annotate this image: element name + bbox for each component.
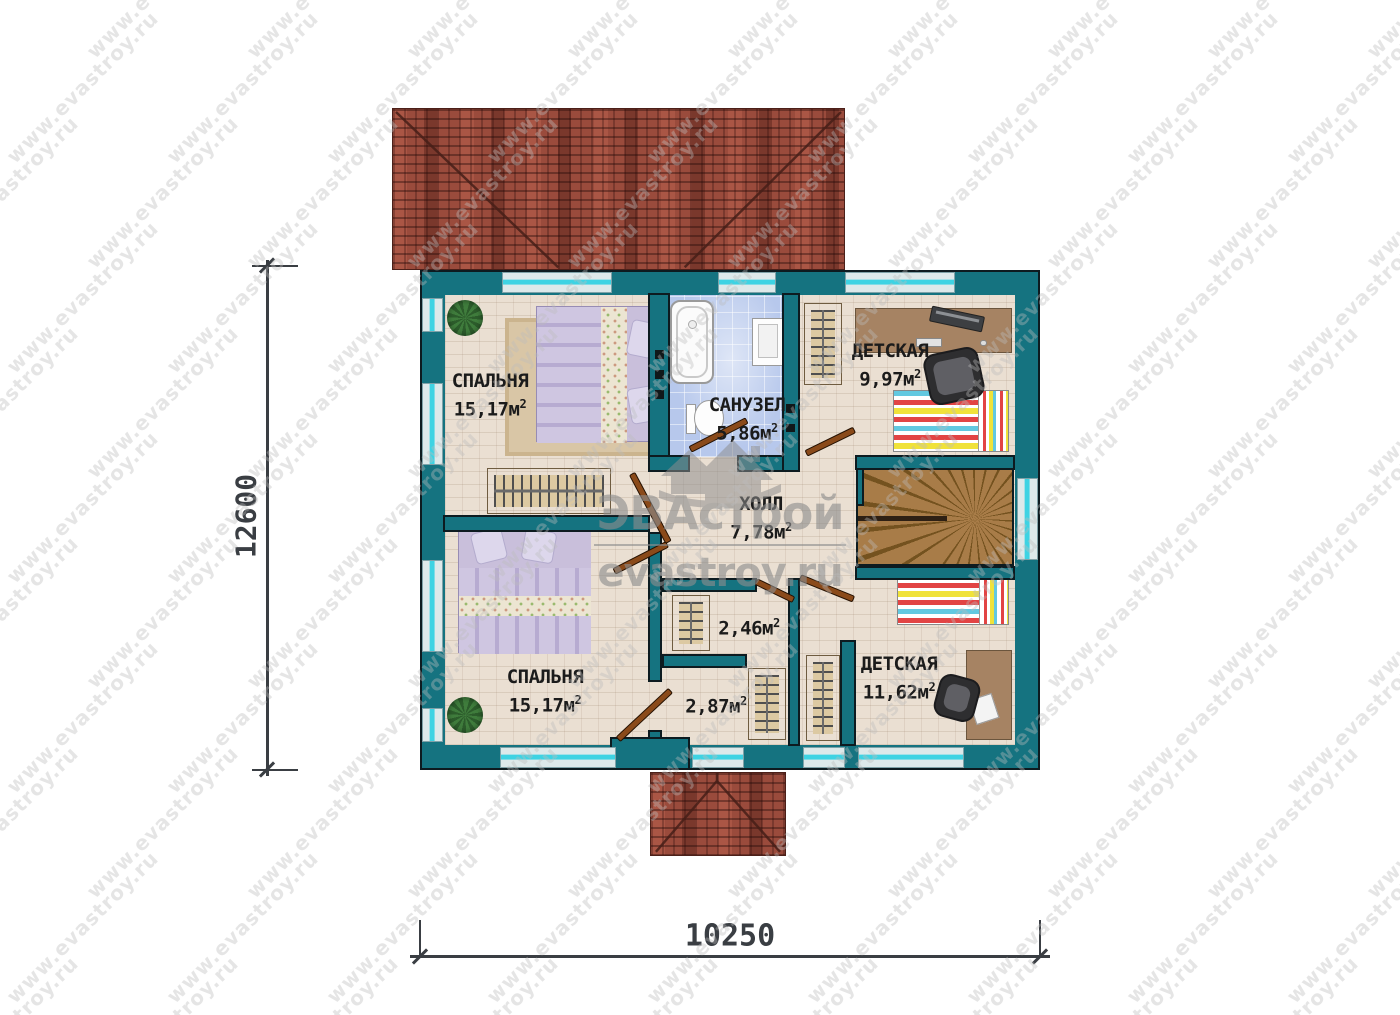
watermark-text: www.evastroy.ru (1202, 531, 1364, 693)
watermark-text: www.evastroy.ru (1282, 216, 1400, 378)
watermark-text: www.evastroy.ru (2, 426, 164, 588)
wardrobe (806, 655, 840, 741)
roof-top (392, 108, 845, 270)
watermark-text: www.evastroy.ru (162, 636, 324, 798)
watermark-text: www.evastroy.ru (1122, 636, 1284, 798)
window (845, 272, 955, 293)
watermark-text: www.evastroy.ru (2, 846, 164, 1008)
watermark-text: www.evastroy.ru (1282, 426, 1400, 588)
bed (536, 306, 658, 442)
watermark-text: www.evastroy.ru (1202, 111, 1364, 273)
interior-wall (856, 468, 864, 506)
watermark-text: www.evastroy.ru (562, 0, 724, 63)
dimension-label-horizontal: 10250 (685, 919, 775, 954)
wardrobe (672, 595, 710, 651)
watermark-text: www.evastroy.ru (1362, 531, 1400, 693)
watermark-text: www.evastroy.ru (402, 951, 564, 1015)
watermark-text: www.evastroy.ru (1042, 741, 1204, 903)
watermark-text: www.evastroy.ru (1042, 951, 1204, 1015)
interior-wall (855, 455, 1015, 470)
kids-bed-headboard (979, 574, 1008, 624)
room-area: 11,62м2 (861, 676, 938, 704)
sink (752, 318, 786, 366)
interior-wall (788, 578, 800, 746)
watermark-text: www.evastroy.ru (722, 0, 884, 63)
watermark-text: www.evastroy.ru (82, 321, 244, 483)
room-area: 15,17м2 (452, 393, 529, 421)
watermark-text: www.evastroy.ru (2, 6, 164, 168)
watermark-text: www.evastroy.ru (82, 741, 244, 903)
room-area: 15,17м2 (507, 689, 584, 717)
brand-logo: ЭВАстрой evastroy.ru (588, 428, 852, 596)
watermark-text: www.evastroy.ru (1362, 0, 1400, 63)
watermark-text: www.evastroy.ru (482, 846, 644, 1008)
floor-plan-canvas: СПАЛЬНЯ 15,17м2 САНУЗЕЛ 5,86м2 ДЕТСКАЯ 9… (0, 0, 1400, 1015)
dimension-line-vertical (266, 260, 269, 776)
watermark-text: www.evastroy.ru (1042, 321, 1204, 483)
brand-site: evastroy.ru (588, 550, 852, 596)
window (422, 298, 443, 332)
watermark-text: www.evastroy.ru (402, 0, 564, 63)
plant (447, 300, 483, 336)
pillow (520, 527, 557, 564)
sink-basin (758, 324, 778, 358)
watermark-text: www.evastroy.ru (0, 741, 83, 903)
room-area: 2,46м2 (718, 612, 779, 640)
dimension-line-horizontal (410, 955, 1050, 958)
watermark-text: www.evastroy.ru (0, 111, 83, 273)
dimension-label-vertical: 12600 (230, 474, 263, 558)
bed-runner (459, 596, 591, 616)
bed (458, 523, 590, 653)
watermark-text: www.evastroy.ru (882, 111, 1044, 273)
bed-runner (601, 307, 627, 443)
room-name: САНУЗЕЛ (709, 394, 786, 417)
watermark-text: www.evastroy.ru (322, 846, 484, 1008)
window (803, 747, 845, 768)
wardrobe (748, 668, 786, 740)
plant (447, 697, 483, 733)
room-name: ДЕТСКАЯ (852, 340, 929, 363)
watermark-text: www.evastroy.ru (1282, 636, 1400, 798)
kids-bed-blanket (898, 574, 981, 624)
watermark-text: www.evastroy.ru (1282, 6, 1400, 168)
watermark-text: www.evastroy.ru (242, 951, 404, 1015)
house-icon (655, 428, 785, 508)
window (858, 747, 964, 768)
watermark-text: www.evastroy.ru (1042, 0, 1204, 63)
room-label-bedroom-bottom: СПАЛЬНЯ 15,17м2 (507, 666, 584, 717)
watermark-text: www.evastroy.ru (1362, 111, 1400, 273)
room-name: СПАЛЬНЯ (452, 370, 529, 393)
watermark-text: www.evastroy.ru (0, 531, 83, 693)
watermark-text: www.evastroy.ru (0, 951, 83, 1015)
room-label-kids-top: ДЕТСКАЯ 9,97м2 (852, 340, 929, 391)
watermark-text: www.evastroy.ru (0, 321, 83, 483)
room-label-bedroom-top: СПАЛЬНЯ 15,17м2 (452, 370, 529, 421)
wardrobe (804, 303, 842, 385)
watermark-text: www.evastroy.ru (162, 6, 324, 168)
watermark-text: www.evastroy.ru (82, 0, 244, 63)
watermark-text: www.evastroy.ru (242, 0, 404, 63)
window (422, 383, 443, 465)
watermark-text: www.evastroy.ru (1362, 321, 1400, 483)
window (500, 747, 616, 768)
dimension-witness (252, 265, 298, 267)
watermark-text: www.evastroy.ru (562, 951, 724, 1015)
watermark-text: www.evastroy.ru (1042, 111, 1204, 273)
roof-porch-hip-lines (651, 773, 785, 856)
window (502, 272, 612, 293)
watermark-text: www.evastroy.ru (802, 846, 964, 1008)
mouse (980, 340, 987, 346)
window (692, 747, 744, 768)
window (422, 708, 443, 742)
roof-porch (650, 772, 786, 856)
window (1017, 478, 1038, 560)
watermark-text: www.evastroy.ru (1202, 951, 1364, 1015)
watermark-text: www.evastroy.ru (882, 951, 1044, 1015)
interior-wall (840, 640, 856, 746)
room-area: 9,97м2 (852, 363, 929, 391)
watermark-text: www.evastroy.ru (962, 846, 1124, 1008)
interior-wall (855, 566, 1015, 580)
watermark-text: www.evastroy.ru (82, 951, 244, 1015)
watermark-text: www.evastroy.ru (962, 6, 1124, 168)
watermark-text: www.evastroy.ru (1362, 951, 1400, 1015)
kids-bed-headboard (978, 391, 1008, 451)
watermark-text: www.evastroy.ru (882, 0, 1044, 63)
window (718, 272, 776, 293)
dimension-witness (252, 769, 298, 771)
room-area: 2,87м2 (685, 690, 746, 718)
watermark-text: www.evastroy.ru (1122, 216, 1284, 378)
radiator (655, 350, 664, 410)
watermark-text: www.evastroy.ru (2, 636, 164, 798)
exterior-pier (610, 737, 690, 770)
roof-hip-lines (393, 109, 844, 270)
watermark-text: www.evastroy.ru (1282, 846, 1400, 1008)
watermark-text: www.evastroy.ru (2, 216, 164, 378)
watermark-text: www.evastroy.ru (1202, 741, 1364, 903)
watermark-text: www.evastroy.ru (1362, 741, 1400, 903)
room-name: СПАЛЬНЯ (507, 666, 584, 689)
watermark-text: www.evastroy.ru (162, 216, 324, 378)
room-label-closet-large: 2,87м2 (685, 690, 746, 718)
watermark-text: www.evastroy.ru (1202, 321, 1364, 483)
watermark-text: www.evastroy.ru (722, 951, 884, 1015)
kids-bed (897, 573, 1009, 625)
room-name: ДЕТСКАЯ (861, 653, 938, 676)
bed-blanket (537, 307, 601, 443)
room-label-kids-bottom: ДЕТСКАЯ 11,62м2 (861, 653, 938, 704)
bathtub (670, 300, 714, 384)
watermark-text: www.evastroy.ru (82, 531, 244, 693)
watermark-text: www.evastroy.ru (1202, 0, 1364, 63)
staircase (856, 468, 1014, 566)
watermark-text: www.evastroy.ru (0, 0, 83, 63)
room-label-closet-small: 2,46м2 (718, 612, 779, 640)
watermark-text: www.evastroy.ru (1042, 531, 1204, 693)
interior-wall (662, 654, 747, 668)
watermark-text: www.evastroy.ru (242, 111, 404, 273)
watermark-text: www.evastroy.ru (1122, 846, 1284, 1008)
watermark-text: www.evastroy.ru (82, 111, 244, 273)
watermark-text: www.evastroy.ru (162, 846, 324, 1008)
logo-divider (594, 544, 846, 546)
watermark-text: www.evastroy.ru (1122, 426, 1284, 588)
window (422, 560, 443, 652)
watermark-text: www.evastroy.ru (1122, 6, 1284, 168)
